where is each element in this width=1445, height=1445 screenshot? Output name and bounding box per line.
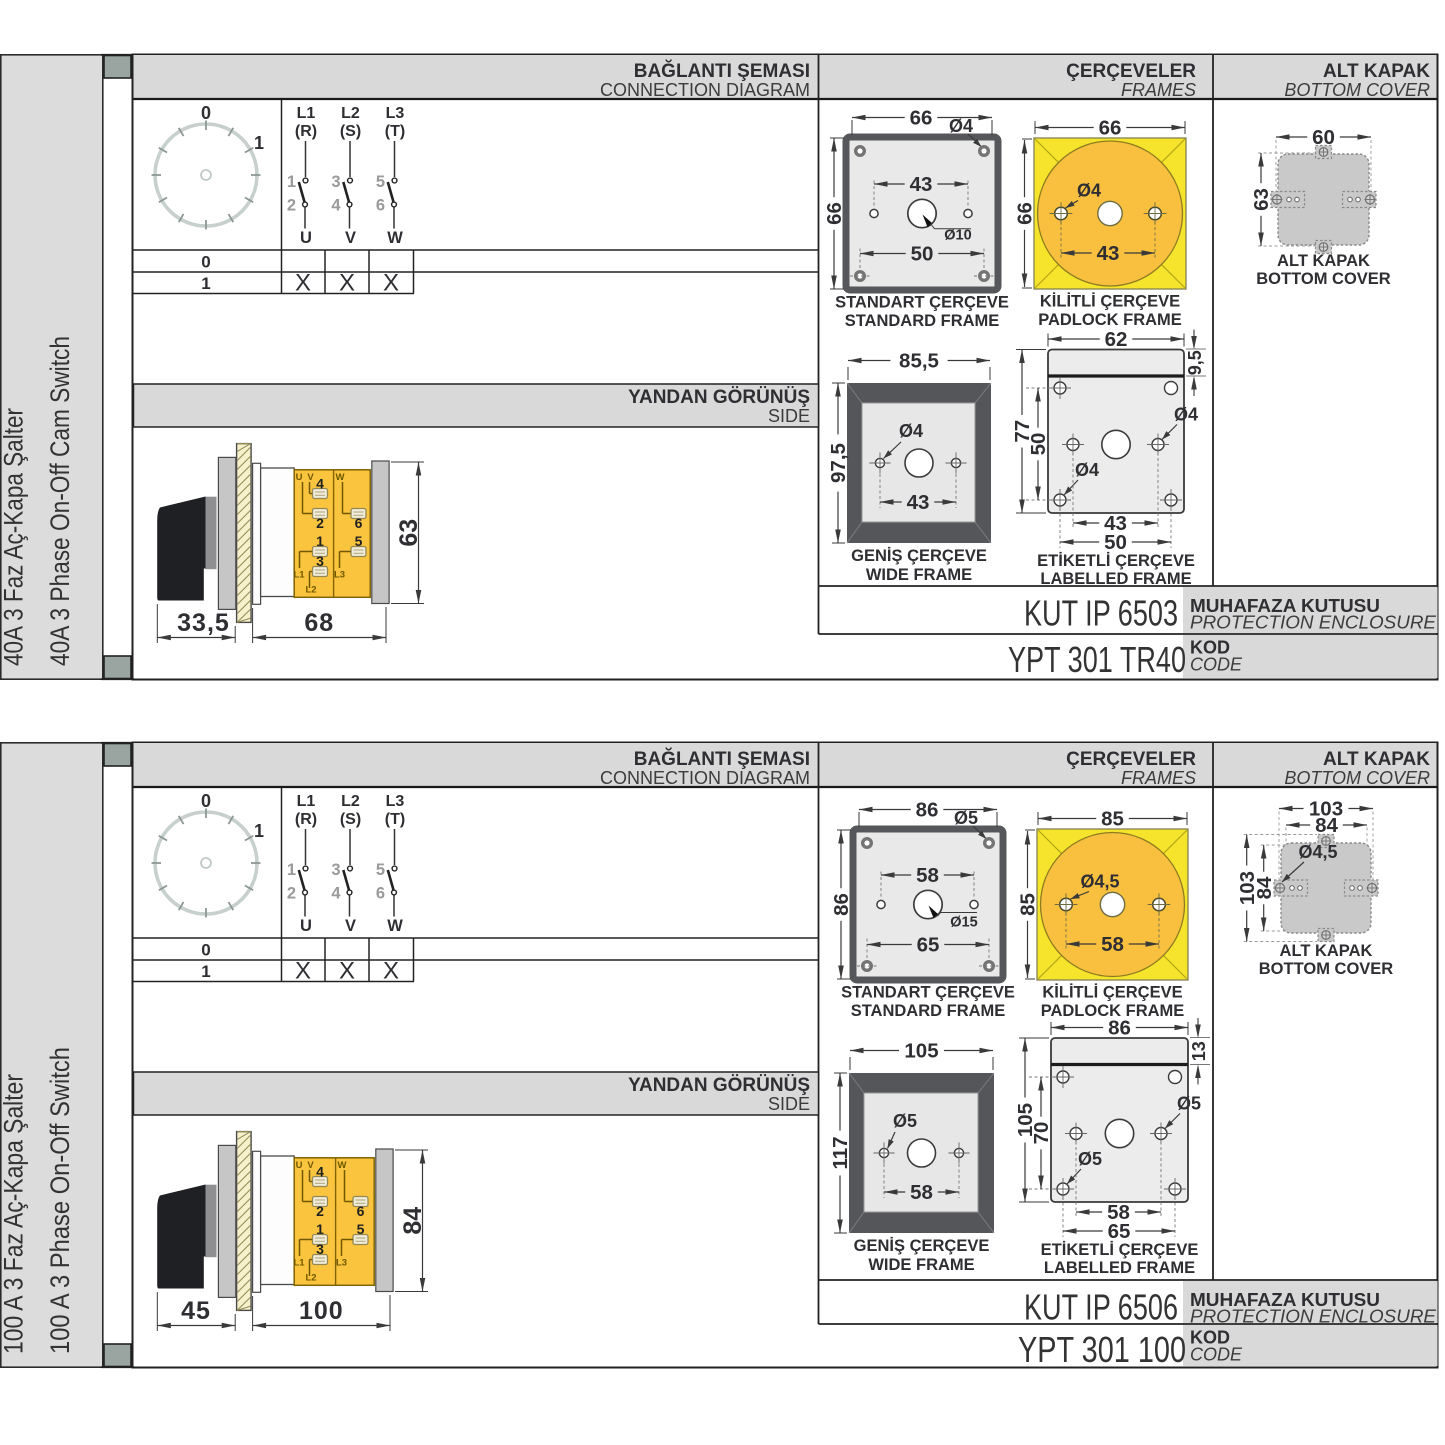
svg-text:YPT 301 100: YPT 301 100 (1018, 1329, 1186, 1370)
svg-text:(R): (R) (295, 123, 317, 140)
svg-text:65: 65 (917, 934, 940, 957)
svg-text:W: W (336, 472, 345, 483)
svg-text:ALT KAPAK: ALT KAPAK (1323, 61, 1430, 82)
svg-text:BOTTOM COVER: BOTTOM COVER (1284, 80, 1430, 100)
svg-text:45: 45 (181, 1297, 211, 1325)
svg-text:U: U (296, 1160, 303, 1171)
svg-text:100 A 3 Phase On-Off Switch: 100 A 3 Phase On-Off Switch (45, 1047, 75, 1354)
svg-text:6: 6 (357, 1203, 365, 1219)
svg-text:2: 2 (316, 1203, 324, 1219)
svg-text:105: 105 (904, 1040, 938, 1063)
svg-text:1: 1 (254, 133, 264, 153)
svg-text:(S): (S) (340, 123, 361, 140)
svg-text:KİLİTLİ ÇERÇEVE: KİLİTLİ ÇERÇEVE (1040, 293, 1180, 311)
svg-text:9,5: 9,5 (1185, 350, 1205, 375)
svg-text:84: 84 (1253, 876, 1276, 899)
svg-text:X: X (295, 958, 311, 985)
svg-text:40A 3 Faz Aç-Kapa Şalter: 40A 3 Faz Aç-Kapa Şalter (0, 408, 29, 666)
svg-text:W: W (387, 229, 403, 247)
svg-text:6: 6 (355, 515, 363, 531)
svg-text:L3: L3 (336, 1258, 347, 1269)
svg-text:43: 43 (1097, 242, 1120, 265)
svg-text:U: U (296, 472, 303, 483)
svg-text:85: 85 (1017, 893, 1040, 916)
svg-text:0: 0 (201, 791, 211, 811)
svg-text:KİLİTLİ ÇERÇEVE: KİLİTLİ ÇERÇEVE (1042, 984, 1182, 1002)
svg-text:PROTECTION ENCLOSURE: PROTECTION ENCLOSURE (1190, 613, 1437, 633)
svg-text:1: 1 (254, 821, 264, 841)
svg-text:CONNECTION DIAGRAM: CONNECTION DIAGRAM (600, 768, 810, 788)
svg-text:Ø4: Ø4 (949, 116, 973, 136)
svg-text:YPT 301 TR40: YPT 301 TR40 (1008, 639, 1186, 680)
svg-text:ALT KAPAK: ALT KAPAK (1277, 252, 1370, 270)
svg-text:3: 3 (331, 173, 340, 191)
svg-text:KUT IP 6506: KUT IP 6506 (1024, 1287, 1178, 1328)
svg-text:100: 100 (299, 1297, 344, 1325)
svg-text:L2: L2 (341, 793, 360, 810)
svg-text:STANDARD FRAME: STANDARD FRAME (845, 312, 1000, 330)
svg-text:X: X (339, 270, 355, 297)
svg-text:Ø5: Ø5 (1177, 1094, 1201, 1114)
svg-text:L2: L2 (341, 105, 360, 122)
svg-text:Ø5: Ø5 (893, 1111, 917, 1131)
svg-text:L1: L1 (297, 105, 316, 122)
svg-text:0: 0 (201, 103, 211, 123)
svg-text:FRAMES: FRAMES (1121, 80, 1196, 100)
svg-text:2: 2 (287, 885, 296, 903)
svg-text:2: 2 (316, 515, 324, 531)
svg-text:L2: L2 (305, 1273, 316, 1284)
svg-text:X: X (383, 270, 399, 297)
svg-text:ÇERÇEVELER: ÇERÇEVELER (1066, 61, 1196, 82)
svg-text:Ø4: Ø4 (1075, 460, 1099, 480)
svg-text:L3: L3 (386, 105, 405, 122)
svg-text:(T): (T) (385, 123, 405, 140)
svg-text:X: X (339, 958, 355, 985)
svg-text:66: 66 (910, 107, 933, 130)
svg-text:1: 1 (201, 962, 210, 981)
svg-text:BOTTOM COVER: BOTTOM COVER (1284, 768, 1430, 788)
svg-text:BAĞLANTI ŞEMASI: BAĞLANTI ŞEMASI (634, 60, 810, 82)
svg-text:85,5: 85,5 (899, 350, 939, 373)
svg-text:Ø4: Ø4 (1174, 405, 1198, 425)
svg-text:YANDAN GÖRÜNÜŞ: YANDAN GÖRÜNÜŞ (628, 1075, 810, 1096)
svg-text:86: 86 (830, 893, 853, 916)
svg-text:BOTTOM COVER: BOTTOM COVER (1259, 960, 1394, 978)
svg-text:CODE: CODE (1190, 1345, 1243, 1365)
svg-text:33,5: 33,5 (177, 609, 230, 637)
svg-text:V: V (307, 1160, 314, 1171)
svg-text:WIDE FRAME: WIDE FRAME (868, 1256, 974, 1274)
svg-text:U: U (300, 229, 312, 247)
svg-text:WIDE FRAME: WIDE FRAME (866, 566, 972, 584)
svg-text:ALT KAPAK: ALT KAPAK (1323, 749, 1430, 770)
svg-text:63: 63 (395, 519, 423, 547)
svg-text:SIDE: SIDE (768, 1094, 810, 1114)
svg-text:58: 58 (1101, 933, 1124, 956)
svg-text:V: V (307, 472, 314, 483)
svg-text:Ø4,5: Ø4,5 (1298, 842, 1337, 862)
svg-text:1: 1 (201, 274, 210, 293)
svg-text:0: 0 (201, 253, 210, 272)
svg-text:FRAMES: FRAMES (1121, 768, 1196, 788)
svg-text:L2: L2 (305, 585, 316, 596)
svg-text:1: 1 (287, 861, 296, 879)
svg-text:Ø4: Ø4 (899, 421, 923, 441)
svg-text:13: 13 (1189, 1041, 1209, 1061)
svg-text:5: 5 (376, 861, 385, 879)
svg-text:Ø5: Ø5 (954, 808, 978, 828)
svg-text:85: 85 (1101, 808, 1124, 831)
svg-text:U: U (300, 917, 312, 935)
svg-text:ALT KAPAK: ALT KAPAK (1280, 942, 1373, 960)
svg-text:4: 4 (331, 197, 341, 215)
svg-text:YANDAN GÖRÜNÜŞ: YANDAN GÖRÜNÜŞ (628, 387, 810, 408)
svg-text:100 A 3 Faz Aç-Kapa Şalter: 100 A 3 Faz Aç-Kapa Şalter (0, 1074, 29, 1354)
svg-text:40A 3 Phase On-Off Cam Switch: 40A 3 Phase On-Off Cam Switch (45, 336, 75, 666)
svg-text:5: 5 (376, 173, 385, 191)
svg-text:L3: L3 (386, 793, 405, 810)
svg-text:58: 58 (910, 1181, 933, 1204)
svg-text:50: 50 (911, 243, 934, 266)
svg-text:63: 63 (1250, 188, 1273, 211)
svg-text:STANDART ÇERÇEVE: STANDART ÇERÇEVE (835, 294, 1009, 312)
svg-text:3: 3 (331, 861, 340, 879)
svg-text:L3: L3 (334, 570, 345, 581)
svg-text:V: V (345, 229, 356, 247)
svg-text:66: 66 (823, 202, 846, 225)
svg-text:X: X (295, 270, 311, 297)
svg-text:ÇERÇEVELER: ÇERÇEVELER (1066, 749, 1196, 770)
svg-text:STANDART ÇERÇEVE: STANDART ÇERÇEVE (841, 984, 1015, 1002)
svg-text:84: 84 (399, 1207, 427, 1235)
svg-text:1: 1 (287, 173, 296, 191)
svg-text:X: X (383, 958, 399, 985)
svg-text:84: 84 (1315, 814, 1338, 837)
svg-text:0: 0 (201, 941, 210, 960)
svg-text:4: 4 (331, 885, 341, 903)
svg-text:LABELLED FRAME: LABELLED FRAME (1044, 1259, 1195, 1277)
svg-text:68: 68 (304, 609, 334, 637)
svg-text:(S): (S) (340, 811, 361, 828)
svg-text:117: 117 (829, 1136, 852, 1169)
svg-text:Ø15: Ø15 (950, 915, 977, 931)
svg-text:77: 77 (1011, 420, 1034, 443)
svg-text:65: 65 (1108, 1220, 1131, 1243)
svg-text:L1: L1 (293, 570, 305, 581)
svg-text:97,5: 97,5 (827, 443, 850, 483)
svg-text:STANDARD FRAME: STANDARD FRAME (851, 1002, 1006, 1020)
svg-text:BAĞLANTI ŞEMASI: BAĞLANTI ŞEMASI (634, 748, 810, 770)
svg-text:GENİŞ ÇERÇEVE: GENİŞ ÇERÇEVE (851, 547, 987, 565)
svg-text:4: 4 (316, 476, 324, 492)
svg-text:43: 43 (907, 491, 930, 514)
svg-text:4: 4 (316, 1164, 324, 1180)
svg-text:58: 58 (916, 864, 939, 887)
svg-text:GENİŞ ÇERÇEVE: GENİŞ ÇERÇEVE (854, 1237, 990, 1255)
svg-text:(T): (T) (385, 811, 405, 828)
svg-text:BOTTOM COVER: BOTTOM COVER (1256, 270, 1391, 288)
svg-text:66: 66 (1014, 202, 1037, 225)
svg-text:W: W (338, 1160, 347, 1171)
svg-text:L1: L1 (293, 1258, 305, 1269)
svg-text:Ø10: Ø10 (944, 228, 971, 244)
svg-text:SIDE: SIDE (768, 406, 810, 426)
svg-text:Ø5: Ø5 (1078, 1149, 1102, 1169)
svg-text:W: W (387, 917, 403, 935)
svg-text:L1: L1 (297, 793, 316, 810)
svg-text:43: 43 (910, 173, 933, 196)
svg-text:50: 50 (1104, 531, 1127, 554)
svg-text:ETİKETLİ ÇERÇEVE: ETİKETLİ ÇERÇEVE (1041, 1241, 1199, 1259)
svg-text:Ø4: Ø4 (1077, 181, 1101, 201)
svg-text:ETİKETLİ ÇERÇEVE: ETİKETLİ ÇERÇEVE (1037, 552, 1195, 570)
svg-text:CODE: CODE (1190, 655, 1243, 675)
svg-text:PROTECTION ENCLOSURE: PROTECTION ENCLOSURE (1190, 1307, 1437, 1327)
svg-text:86: 86 (916, 799, 939, 822)
svg-text:Ø4,5: Ø4,5 (1080, 872, 1119, 892)
svg-text:62: 62 (1105, 328, 1128, 351)
svg-text:105: 105 (1014, 1103, 1037, 1137)
svg-text:CONNECTION DIAGRAM: CONNECTION DIAGRAM (600, 80, 810, 100)
svg-text:PADLOCK FRAME: PADLOCK FRAME (1038, 311, 1182, 329)
svg-text:6: 6 (376, 885, 385, 903)
svg-text:86: 86 (1108, 1017, 1131, 1040)
svg-text:V: V (345, 917, 356, 935)
svg-text:(R): (R) (295, 811, 317, 828)
svg-text:KUT IP 6503: KUT IP 6503 (1024, 593, 1178, 634)
svg-text:6: 6 (376, 197, 385, 215)
svg-text:66: 66 (1099, 117, 1122, 140)
svg-text:2: 2 (287, 197, 296, 215)
